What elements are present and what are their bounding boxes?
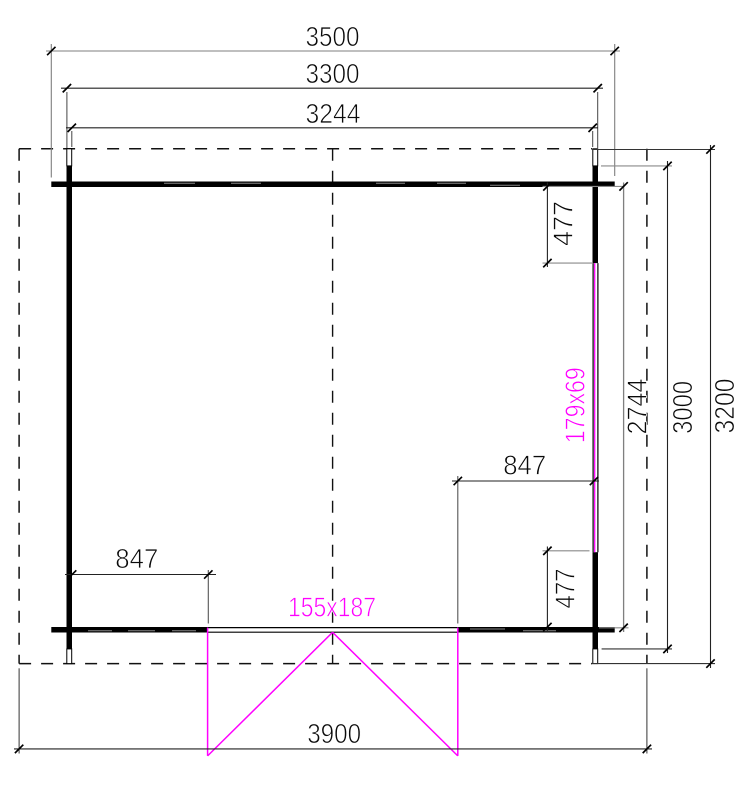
svg-text:477: 477 [549,569,580,609]
svg-text:847: 847 [503,450,546,481]
svg-text:3500: 3500 [306,21,360,52]
svg-text:3244: 3244 [306,98,361,129]
svg-text:3900: 3900 [307,718,361,749]
svg-text:3300: 3300 [306,58,360,89]
svg-text:2744: 2744 [622,379,653,435]
svg-text:847: 847 [115,543,158,574]
svg-text:179x69: 179x69 [560,367,591,443]
svg-text:3000: 3000 [667,381,698,434]
svg-text:155x187: 155x187 [288,592,376,623]
svg-text:477: 477 [548,201,579,246]
svg-text:3200: 3200 [709,379,740,434]
